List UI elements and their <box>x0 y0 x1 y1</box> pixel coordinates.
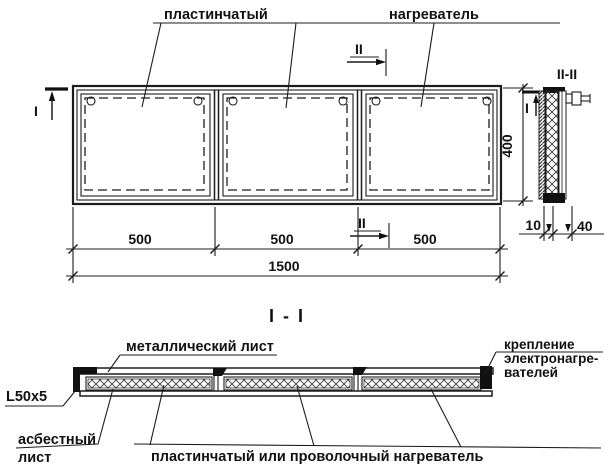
marker-letter: II <box>355 41 363 57</box>
mount-label-line2: электронагре- <box>504 351 598 366</box>
section-marker-i-left: I <box>34 89 68 120</box>
heater-dashed-outline-2 <box>227 98 347 190</box>
metal-sheet-edge <box>559 91 566 199</box>
dim-value-400: 400 <box>499 134 515 158</box>
dim-value-40: 40 <box>577 218 593 234</box>
angle-label: L50x5 <box>6 389 47 405</box>
heater-segment-hatch <box>364 379 479 388</box>
mount-label-line3: вателей <box>504 365 558 380</box>
heater-layer-edge <box>546 91 558 199</box>
arrowhead-icon <box>379 233 389 239</box>
arrowhead-icon <box>376 59 386 65</box>
dim-value-1500: 1500 <box>268 258 299 274</box>
asbestos-sheet-bottom <box>80 391 492 396</box>
section-ii-view: II-II I <box>522 66 590 203</box>
heater-segment-hatch <box>88 379 210 388</box>
heater-segment-hatch <box>226 379 350 388</box>
panel-frame-2 <box>223 94 353 196</box>
asbestos-layer-edge <box>539 91 545 199</box>
arrowhead-icon <box>49 91 55 101</box>
section-i-view <box>73 366 493 396</box>
marker-letter: I <box>34 103 38 119</box>
heater-dashed-outline-3 <box>370 98 489 190</box>
section-title: II-II <box>557 66 577 82</box>
metal-sheet-label: металлический лист <box>126 339 274 355</box>
heater-clamp <box>213 368 227 376</box>
mount-label-line1: крепление <box>504 337 575 352</box>
asbestos-label-line2: лист <box>18 450 51 466</box>
end-clamp <box>480 366 492 389</box>
technical-drawing: пластинчатый нагреватель I <box>0 0 605 472</box>
callout-shelf-line <box>134 444 601 448</box>
metal-sheet-top <box>79 368 493 374</box>
section-i-title: I - I <box>269 306 305 326</box>
section-marker-ii-top: II <box>347 41 386 76</box>
dimension-chain-bottom: 500 500 500 1500 <box>66 207 508 283</box>
leader-line <box>150 385 164 445</box>
section-marker-ii-bottom: II <box>350 215 389 248</box>
section-i-callouts: металлический лист L50x5 асбестный лист … <box>5 337 603 466</box>
plate-label: пластинчатый <box>164 7 268 23</box>
leader-line <box>297 386 314 446</box>
dim-value-500: 500 <box>128 231 152 247</box>
dimension-10-40: 10 40 <box>519 206 604 241</box>
bolt-icon <box>566 92 590 105</box>
panel-frame-1 <box>81 94 210 196</box>
leader-line <box>431 389 461 447</box>
washer <box>566 94 572 103</box>
marker-letter: I <box>525 100 529 116</box>
nut <box>572 92 581 105</box>
bottom-clamp <box>543 193 565 203</box>
arrowhead-icon <box>533 94 539 103</box>
section-marker-i-on-ii: I <box>522 92 539 116</box>
leader-line <box>108 355 120 372</box>
heater-dashed-outline-1 <box>85 98 204 190</box>
leader-line <box>63 390 76 406</box>
dim-value-500: 500 <box>270 231 294 247</box>
panel-frame-3 <box>366 94 493 196</box>
dim-value-10: 10 <box>525 217 541 233</box>
dim-value-500: 500 <box>413 231 437 247</box>
heater-type-label: пластинчатый или проволочный нагреватель <box>151 449 484 465</box>
leader-line <box>286 23 296 108</box>
panel-inner-frame <box>77 90 497 200</box>
heater-label: нагреватель <box>389 7 479 23</box>
marker-letter: II <box>358 215 366 231</box>
arrowhead-icon <box>565 224 571 232</box>
